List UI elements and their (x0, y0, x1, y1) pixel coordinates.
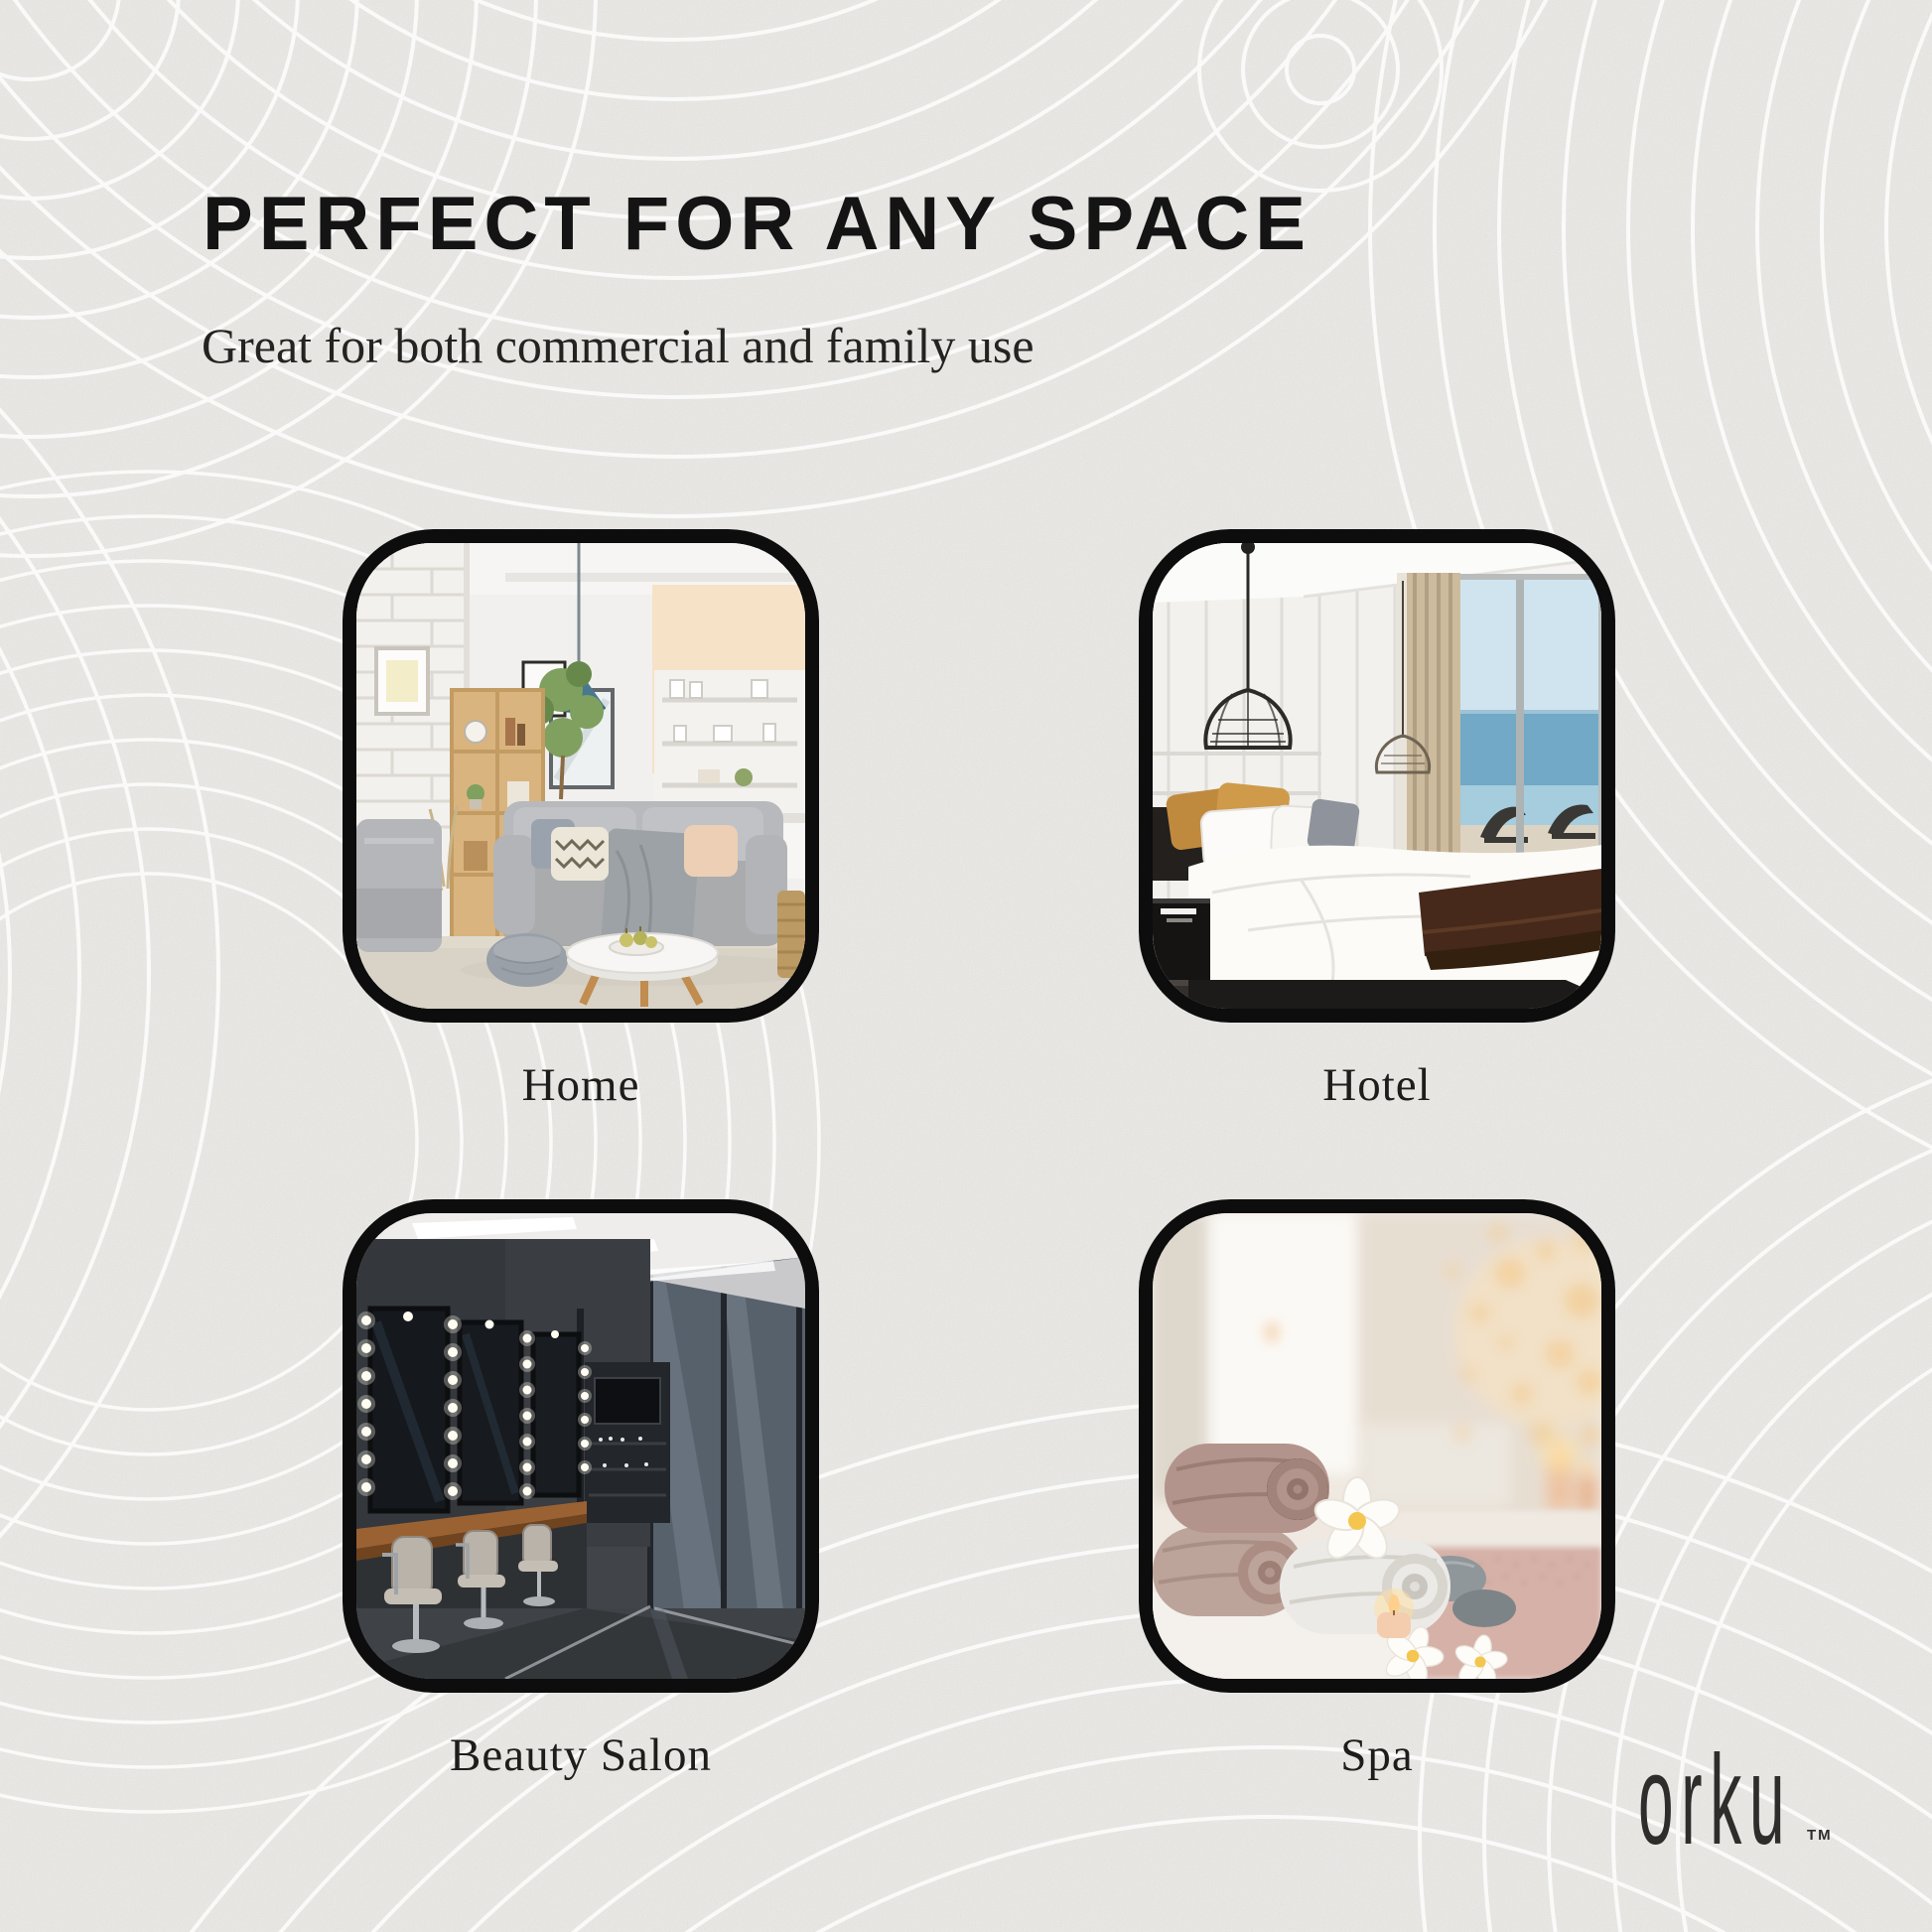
trademark-symbol: TM (1807, 1827, 1833, 1844)
brand-logo: orku TM (1638, 1737, 1866, 1857)
beauty-salon-photo (356, 1213, 805, 1679)
background-texture (0, 0, 1932, 1932)
hotel-bedroom-photo (1153, 543, 1601, 1009)
spa-towels-photo (1153, 1213, 1601, 1679)
photo-frame (343, 1199, 819, 1693)
use-case-card-beauty-salon: Beauty Salon (343, 1199, 819, 1782)
card-label-beauty-salon: Beauty Salon (343, 1728, 819, 1782)
card-label-spa: Spa (1139, 1728, 1615, 1782)
card-label-hotel: Hotel (1139, 1058, 1615, 1112)
poster: PERFECT FOR ANY SPACE Great for both com… (0, 0, 1932, 1932)
photo-frame (343, 529, 819, 1023)
use-case-card-spa: Spa (1139, 1199, 1615, 1782)
use-case-card-home: Home (343, 529, 819, 1112)
page-title: PERFECT FOR ANY SPACE (203, 185, 1311, 264)
photo-frame (1139, 529, 1615, 1023)
card-label-home: Home (343, 1058, 819, 1112)
tea-candle (1374, 1588, 1414, 1638)
brand-name: orku (1638, 1737, 1792, 1864)
page-subtitle: Great for both commercial and family use (202, 316, 1035, 375)
living-room-photo (356, 543, 805, 1009)
use-case-card-hotel: Hotel (1139, 529, 1615, 1112)
photo-frame (1139, 1199, 1615, 1693)
